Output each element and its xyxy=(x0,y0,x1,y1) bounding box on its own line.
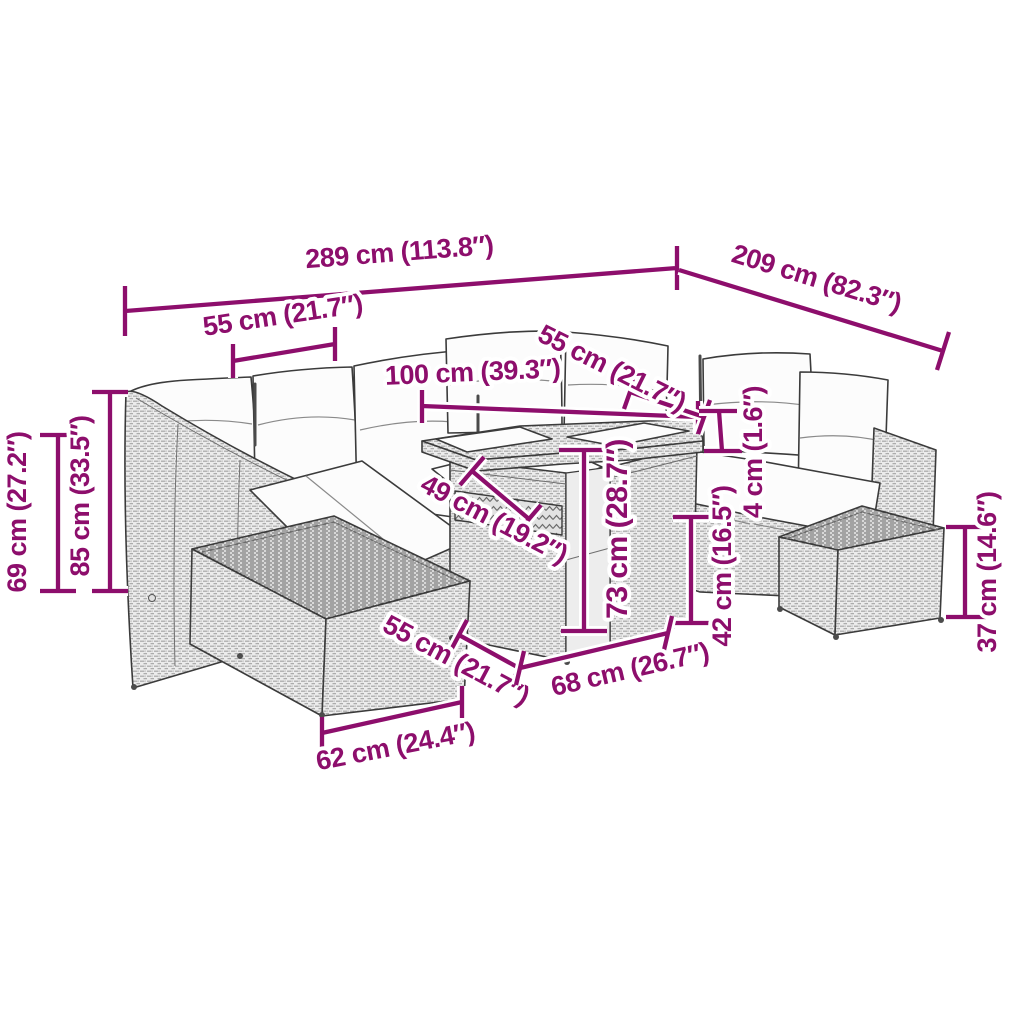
footstool-left-face xyxy=(779,537,838,635)
dim-label-total-width: 289 cm (113.8″) xyxy=(304,230,494,274)
dimension-footstool-height: 37 cm (14.6″) xyxy=(946,491,1002,652)
dim-label-seat-height: 42 cm (16.5″) xyxy=(707,485,737,646)
dim-label-total-height: 85 cm (33.5″) xyxy=(65,415,95,576)
dim-label-table-height: 73 cm (28.7″) xyxy=(601,439,634,619)
panel-screw xyxy=(149,595,156,602)
dimension-diagram: 289 cm (113.8″) 209 cm (82.3″) 55 cm (21… xyxy=(0,0,1024,1024)
dimension-total-depth: 209 cm (82.3″) xyxy=(679,238,949,370)
foot-dot xyxy=(131,684,137,690)
foot-dot xyxy=(938,617,944,623)
dimension-total-height: 85 cm (33.5″) xyxy=(65,392,128,591)
foot-dot xyxy=(777,606,783,612)
dim-label-total-depth: 209 cm (82.3″) xyxy=(728,238,905,318)
foot-dot xyxy=(833,634,839,640)
dim-label-footstool-height: 37 cm (14.6″) xyxy=(972,491,1002,652)
foot-dot xyxy=(237,653,243,659)
dim-label-cushion-thickness: 4 cm (1.6″) xyxy=(738,386,768,518)
diagram-canvas: 289 cm (113.8″) 209 cm (82.3″) 55 cm (21… xyxy=(0,0,1024,1024)
dim-line xyxy=(92,392,128,591)
dim-label-back-height: 69 cm (27.2″) xyxy=(2,431,32,592)
